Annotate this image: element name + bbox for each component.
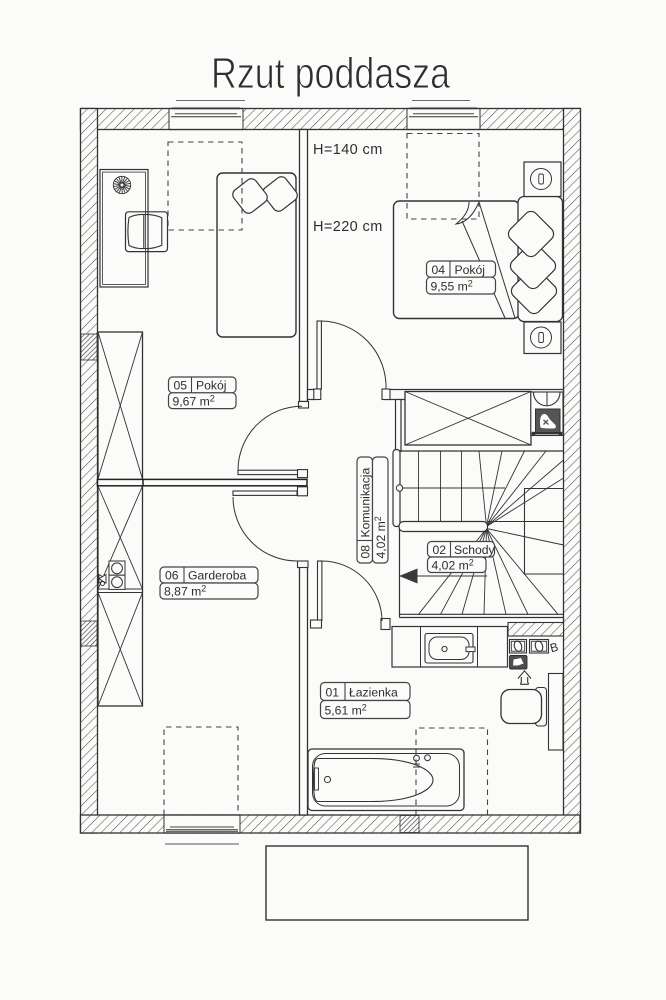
svg-text:H=140 cm: H=140 cm: [313, 142, 383, 158]
svg-text:4,02 m2: 4,02 m2: [373, 516, 388, 558]
svg-text:H=220 cm: H=220 cm: [313, 219, 383, 235]
svg-text:06: 06: [165, 569, 179, 583]
svg-text:02: 02: [433, 543, 447, 557]
svg-text:9,67 m2: 9,67 m2: [173, 393, 215, 408]
svg-text:8,87 m2: 8,87 m2: [164, 584, 206, 599]
svg-text:Rzut poddasza: Rzut poddasza: [211, 49, 450, 98]
svg-text:Komunikacja: Komunikacja: [358, 468, 372, 538]
svg-text:9,55 m2: 9,55 m2: [431, 279, 473, 294]
svg-text:Schody: Schody: [454, 543, 496, 557]
svg-text:08: 08: [358, 545, 372, 559]
svg-text:5,61 m2: 5,61 m2: [325, 702, 367, 717]
svg-text:Garderoba: Garderoba: [188, 569, 246, 583]
svg-text:05: 05: [174, 379, 188, 393]
svg-text:04: 04: [432, 263, 446, 277]
svg-text:Pokój: Pokój: [196, 379, 227, 393]
svg-text:Łazienka: Łazienka: [349, 685, 398, 699]
svg-text:01: 01: [326, 685, 340, 699]
svg-text:Pokój: Pokój: [455, 263, 486, 277]
svg-text:4,02 m2: 4,02 m2: [432, 557, 474, 572]
